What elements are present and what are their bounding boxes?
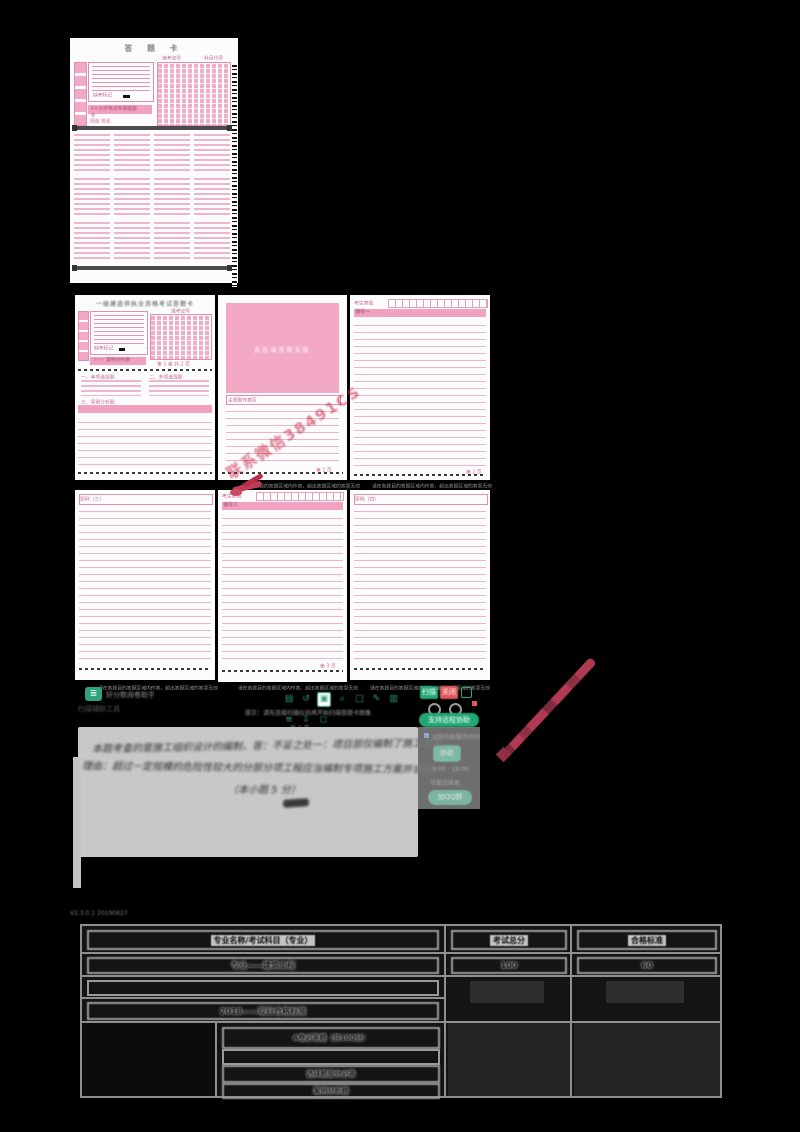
lined-page-2: 案例（三） — [75, 490, 215, 680]
sheet2-bubbles-left — [81, 380, 141, 396]
sheet2-id-grid — [150, 314, 212, 360]
sheet2-banner: （一）案例分析题 — [90, 357, 146, 365]
panelF-lines — [354, 505, 486, 663]
app-logo: ≣ — [85, 687, 102, 701]
sheet1-notice-box: 缺考标记 — [88, 62, 154, 102]
th-total: 考试总分 — [451, 930, 567, 950]
stop-button[interactable]: 关闭 — [440, 686, 458, 699]
th-subject: 专业名称/考试科目（专业） — [87, 930, 439, 950]
td-standard: 2018——现行合格标准 — [87, 1002, 439, 1020]
screenshot-root: 答 题 卡 缺考标记 准考证号 科目代号 ××大学考试专用答题卡 班级 姓名 — [0, 0, 800, 1132]
tear-line-c — [354, 474, 486, 476]
sub-row-1: A卷必答题（共100分） — [222, 1027, 440, 1049]
td-total: 100 — [451, 957, 567, 974]
handwriting-panel: 本题考查的是施工组织设计的编制，答：不妥之处一：项目部仅编制了施工方案； 理由：… — [78, 727, 418, 857]
id-header: 准考证号 — [162, 54, 181, 61]
tooltip-text: 提示：请先连接扫描仪后再开始扫描答题卡图像 — [245, 708, 371, 717]
panelE-page: 第 3 页 — [320, 662, 336, 669]
sheet1-title: 答 题 卡 — [70, 43, 238, 54]
tear-line-d — [79, 668, 211, 670]
toolbar-icon-active[interactable]: ▣ — [317, 692, 331, 707]
sub-row-4: 案例分析题 — [222, 1083, 440, 1099]
sub-row-3: 选择题部分必答 — [222, 1065, 440, 1083]
no-answer-text: 此区域答题无效 — [226, 345, 339, 354]
handwriting-line-3: （本小题 5 分） — [228, 781, 301, 796]
gray-extension — [418, 727, 480, 809]
answer-bubble-area — [74, 134, 230, 262]
td-pass: 60 — [577, 957, 717, 974]
bottom-bar — [74, 266, 230, 270]
panelE-lines — [222, 512, 343, 660]
pink-block-page: 此区域答题无效 主观题作答区 第 1 页 — [218, 295, 347, 480]
sheet2-bubbles-right — [149, 380, 209, 396]
alert-dot-icon — [472, 701, 477, 706]
tear-note-row2-c: 请在各题目的答题区域内作答，超出答题区域的答案无效 — [372, 482, 492, 489]
sheet2-notice-box: 缺考标记 — [90, 311, 148, 355]
divider-dotted — [78, 369, 212, 371]
td-empty — [87, 980, 439, 996]
toolbar-icon-search[interactable]: ⌕ — [336, 693, 348, 706]
settings-icon[interactable] — [461, 687, 472, 698]
absent-mark-label: 缺考标记 — [93, 91, 112, 98]
gray-block-2 — [606, 981, 684, 1003]
sheet1-banner: ××大学考试专用答题卡 — [88, 105, 152, 114]
app-sub-text: 扫描辅助工具 — [78, 704, 120, 714]
absent-mark-bubble — [123, 95, 130, 98]
tear-line-e — [222, 670, 343, 672]
scan-button[interactable]: 扫描 — [420, 686, 438, 699]
red-scribble — [230, 476, 270, 498]
gray-block-1 — [470, 981, 544, 1003]
lined-page-3: 考生禁填 题号三 第 3 页 — [218, 490, 347, 682]
panelC-lines — [354, 319, 486, 467]
toolbar-icon-box[interactable]: □ — [353, 693, 365, 706]
sub-row-2 — [222, 1049, 440, 1065]
panelD-lines — [79, 505, 211, 663]
sheet2-lines — [78, 416, 212, 468]
answer-sheet-top: 答 题 卡 缺考标记 准考证号 科目代号 ××大学考试专用答题卡 班级 姓名 — [70, 38, 238, 283]
toolbar-icon-grid[interactable]: ▤ — [283, 693, 295, 706]
subcell-empty — [82, 1023, 215, 1096]
subject-header: 科目代号 — [204, 54, 223, 61]
version-text: V2.3.0.1 20190627 — [70, 910, 128, 917]
gray-strip — [73, 757, 81, 888]
lined-page-4: 案例（四） — [350, 490, 490, 680]
gray-fill-right-1 — [448, 1023, 570, 1096]
handwriting-line-1: 本题考查的是施工组织设计的编制，答：不妥之处一：项目部仅编制了施工方案； — [92, 734, 452, 755]
sheet2-pink-row — [78, 405, 212, 413]
td-major: 专业——建筑工程 — [87, 957, 439, 974]
app-logo-text: 好分数阅卷助手 — [106, 690, 155, 700]
logo-glyph-icon: ≣ — [90, 689, 98, 699]
toolbar-icon-edit[interactable]: ✎ — [370, 693, 382, 706]
th-pass: 合格标准 — [577, 930, 717, 950]
panelC-boxes — [388, 299, 488, 308]
handwriting-smudge — [283, 798, 309, 808]
panelC-band: 题号一 — [354, 309, 486, 317]
score-table: 专业名称/考试科目（专业） 考试总分 合格标准 专业——建筑工程 100 60 … — [80, 924, 722, 1098]
status-rings — [428, 701, 480, 712]
sheet2-title: 一级建造师执业资格考试答题卡 — [75, 299, 215, 308]
toolbar-icon-undo[interactable]: ↺ — [300, 693, 312, 706]
id-bubble-grid — [157, 62, 231, 126]
divider-bar — [74, 126, 230, 130]
vol-label: 第 1 卷 共 2 页 — [157, 360, 190, 367]
barcode — [232, 65, 237, 287]
toolbar: ▤ ↺ ▣ ⌕ □ ✎ ▥ ≡ ⇩ ◻ — [283, 686, 403, 700]
sheet1-class-row: 班级 姓名 — [90, 117, 111, 124]
panelC-header: 考生禁填 — [354, 299, 373, 306]
sheet2-side-labels — [78, 311, 89, 361]
no-answer-zone: 此区域答题无效 — [226, 303, 339, 393]
handwriting-line-2: 理由：超过一定规模的危险性较大的分部分项工程应当编制专项施工方案并论证。 — [82, 757, 442, 776]
toolbar-icon-table[interactable]: ▥ — [388, 693, 400, 706]
tear-line-a — [78, 472, 212, 474]
sheet1-side-labels — [74, 62, 87, 126]
panelE-band: 题号三 — [222, 502, 343, 510]
answer-sheet-2: 一级建造师执业资格考试答题卡 缺考标记 准考证号 （一）案例分析题 第 1 卷 … — [75, 295, 215, 480]
gray-fill-right-2 — [574, 1023, 720, 1096]
pen-graphic — [503, 657, 597, 757]
remote-pill-button[interactable]: 支持远程协助 — [419, 713, 479, 727]
tear-line-f — [354, 668, 486, 670]
